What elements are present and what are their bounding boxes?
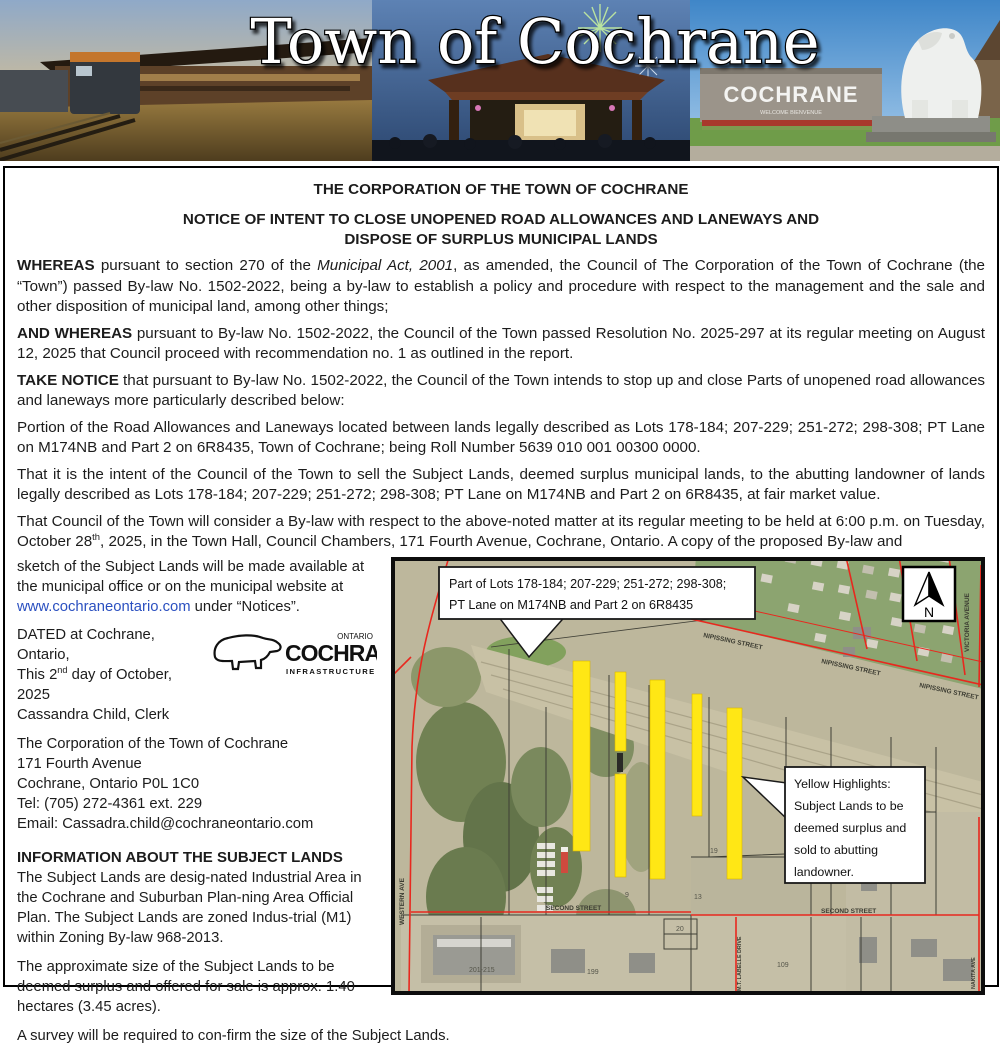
dated-line2: This 2nd day of October, 2025 — [17, 665, 202, 705]
town-of-cochrane-public-notice: { "banner": { "title": "Town of Cochrane… — [0, 0, 1000, 988]
website-link[interactable]: www.cochraneontario.com — [17, 599, 191, 615]
notice-heading-corporation: THE CORPORATION OF THE TOWN OF COCHRANE — [17, 180, 985, 200]
banner-title: Town of Cochrane — [250, 5, 819, 78]
lower-section: NIPISSING STREET NIPISSING STREET NIPISS… — [17, 557, 985, 1046]
dated-ordinal-sup: nd — [57, 665, 67, 675]
dated-line1: DATED at Cochrane, Ontario, — [17, 625, 202, 665]
lot-number-199: 199 — [587, 969, 599, 976]
north-arrow-icon: N — [903, 567, 955, 621]
welcome-sign-text: COCHRANE — [723, 82, 858, 107]
dated-line2-pre: This 2 — [17, 667, 57, 683]
street-label-nakita: NAKITA AVE — [971, 956, 977, 988]
notice-content-box: THE CORPORATION OF THE TOWN OF COCHRANE … — [3, 166, 999, 987]
meeting-text-2: , 2025, in the Town Hall, Council Chambe… — [100, 533, 902, 550]
whereas-text-pre: pursuant to section 270 of the — [95, 257, 318, 274]
lot-number-19: 19 — [710, 848, 718, 855]
notice-heading-intent-line1: NOTICE OF INTENT TO CLOSE UNOPENED ROAD … — [17, 210, 985, 230]
callout-yellow-line1: Yellow Highlights: — [794, 777, 891, 791]
dated-line3-clerk: Cassandra Child, Clerk — [17, 705, 202, 725]
lot-number-13: 13 — [694, 894, 702, 901]
laneway-obstruction — [617, 753, 623, 772]
logo-cochrane-text: COCHRANE — [285, 640, 377, 666]
notice-heading-intent-line2: DISPOSE OF SURPLUS MUNICIPAL LANDS — [17, 230, 985, 250]
callout-yellow-line3: deemed surplus and — [794, 821, 906, 835]
banner: COCHRANE WELCOME BIENVENUE Town of Cochr… — [0, 0, 1000, 161]
whereas-lead: WHEREAS — [17, 257, 95, 274]
subject-lands-map: NIPISSING STREET NIPISSING STREET NIPISS… — [391, 557, 985, 995]
sketch-text-1: sketch of the Subject Lands will be made… — [17, 559, 364, 595]
lot-number-20: 20 — [676, 926, 684, 933]
street-label-second-2: SECOND STREET — [821, 908, 876, 915]
lot-number-109: 109 — [777, 962, 789, 969]
lot-number-201-215: 201-215 — [469, 967, 495, 974]
paragraph-meeting: That Council of the Town will consider a… — [17, 512, 985, 553]
street-label-labelle: M.T. LABELLE DRIVE — [737, 936, 743, 991]
callout-yellow-line4: sold to abutting — [794, 843, 878, 857]
dated-lines: DATED at Cochrane, Ontario, This 2nd day… — [17, 625, 202, 725]
paragraph-and-whereas: AND WHEREAS pursuant to By-law No. 1502-… — [17, 324, 985, 365]
cochrane-infrastructure-logo: ONTARIO COCHRANE INFRASTRUCTURE SERVICES — [209, 627, 377, 688]
sketch-text-2: under “Notices”. — [191, 599, 300, 615]
north-arrow-label: N — [924, 604, 934, 620]
lot-number-9: 9 — [625, 892, 629, 899]
and-whereas-lead: AND WHEREAS — [17, 325, 132, 342]
callout-lots-line2: PT Lane on M174NB and Part 2 on 6R8435 — [449, 598, 693, 612]
banner-collage: COCHRANE WELCOME BIENVENUE Town of Cochr… — [0, 0, 1000, 161]
take-notice-text: that pursuant to By-law No. 1502-2022, t… — [17, 372, 985, 410]
take-notice-lead: TAKE NOTICE — [17, 372, 119, 389]
logo-tagline-text: INFRASTRUCTURE SERVICES — [286, 667, 377, 676]
dated-block: DATED at Cochrane, Ontario, This 2nd day… — [17, 625, 381, 725]
paragraph-portion: Portion of the Road Allowances and Lanew… — [17, 418, 985, 459]
callout-lots-line1: Part of Lots 178-184; 207-229; 251-272; … — [449, 577, 726, 591]
paragraph-whereas: WHEREAS pursuant to section 270 of the M… — [17, 256, 985, 318]
paragraph-take-notice: TAKE NOTICE that pursuant to By-law No. … — [17, 371, 985, 412]
and-whereas-text: pursuant to By-law No. 1502-2022, the Co… — [17, 325, 985, 363]
street-label-victoria: VICTORIA AVENUE — [964, 592, 971, 652]
welcome-sign-subtext: WELCOME BIENVENUE — [760, 110, 822, 116]
meeting-ordinal-sup: th — [92, 531, 100, 542]
municipal-act-italic: Municipal Act, 2001 — [317, 257, 453, 274]
callout-yellow-line2: Subject Lands to be — [794, 799, 904, 813]
polar-bear-logo-icon — [215, 635, 281, 669]
street-label-second-1: SECOND STREET — [546, 905, 601, 912]
street-label-western: WESTERN AVE — [399, 877, 406, 925]
callout-yellow-line5: landowner. — [794, 865, 854, 879]
info-paragraph-survey: A survey will be required to con-firm th… — [17, 1026, 985, 1046]
paragraph-intent-to-sell: That it is the intent of the Council of … — [17, 465, 985, 506]
